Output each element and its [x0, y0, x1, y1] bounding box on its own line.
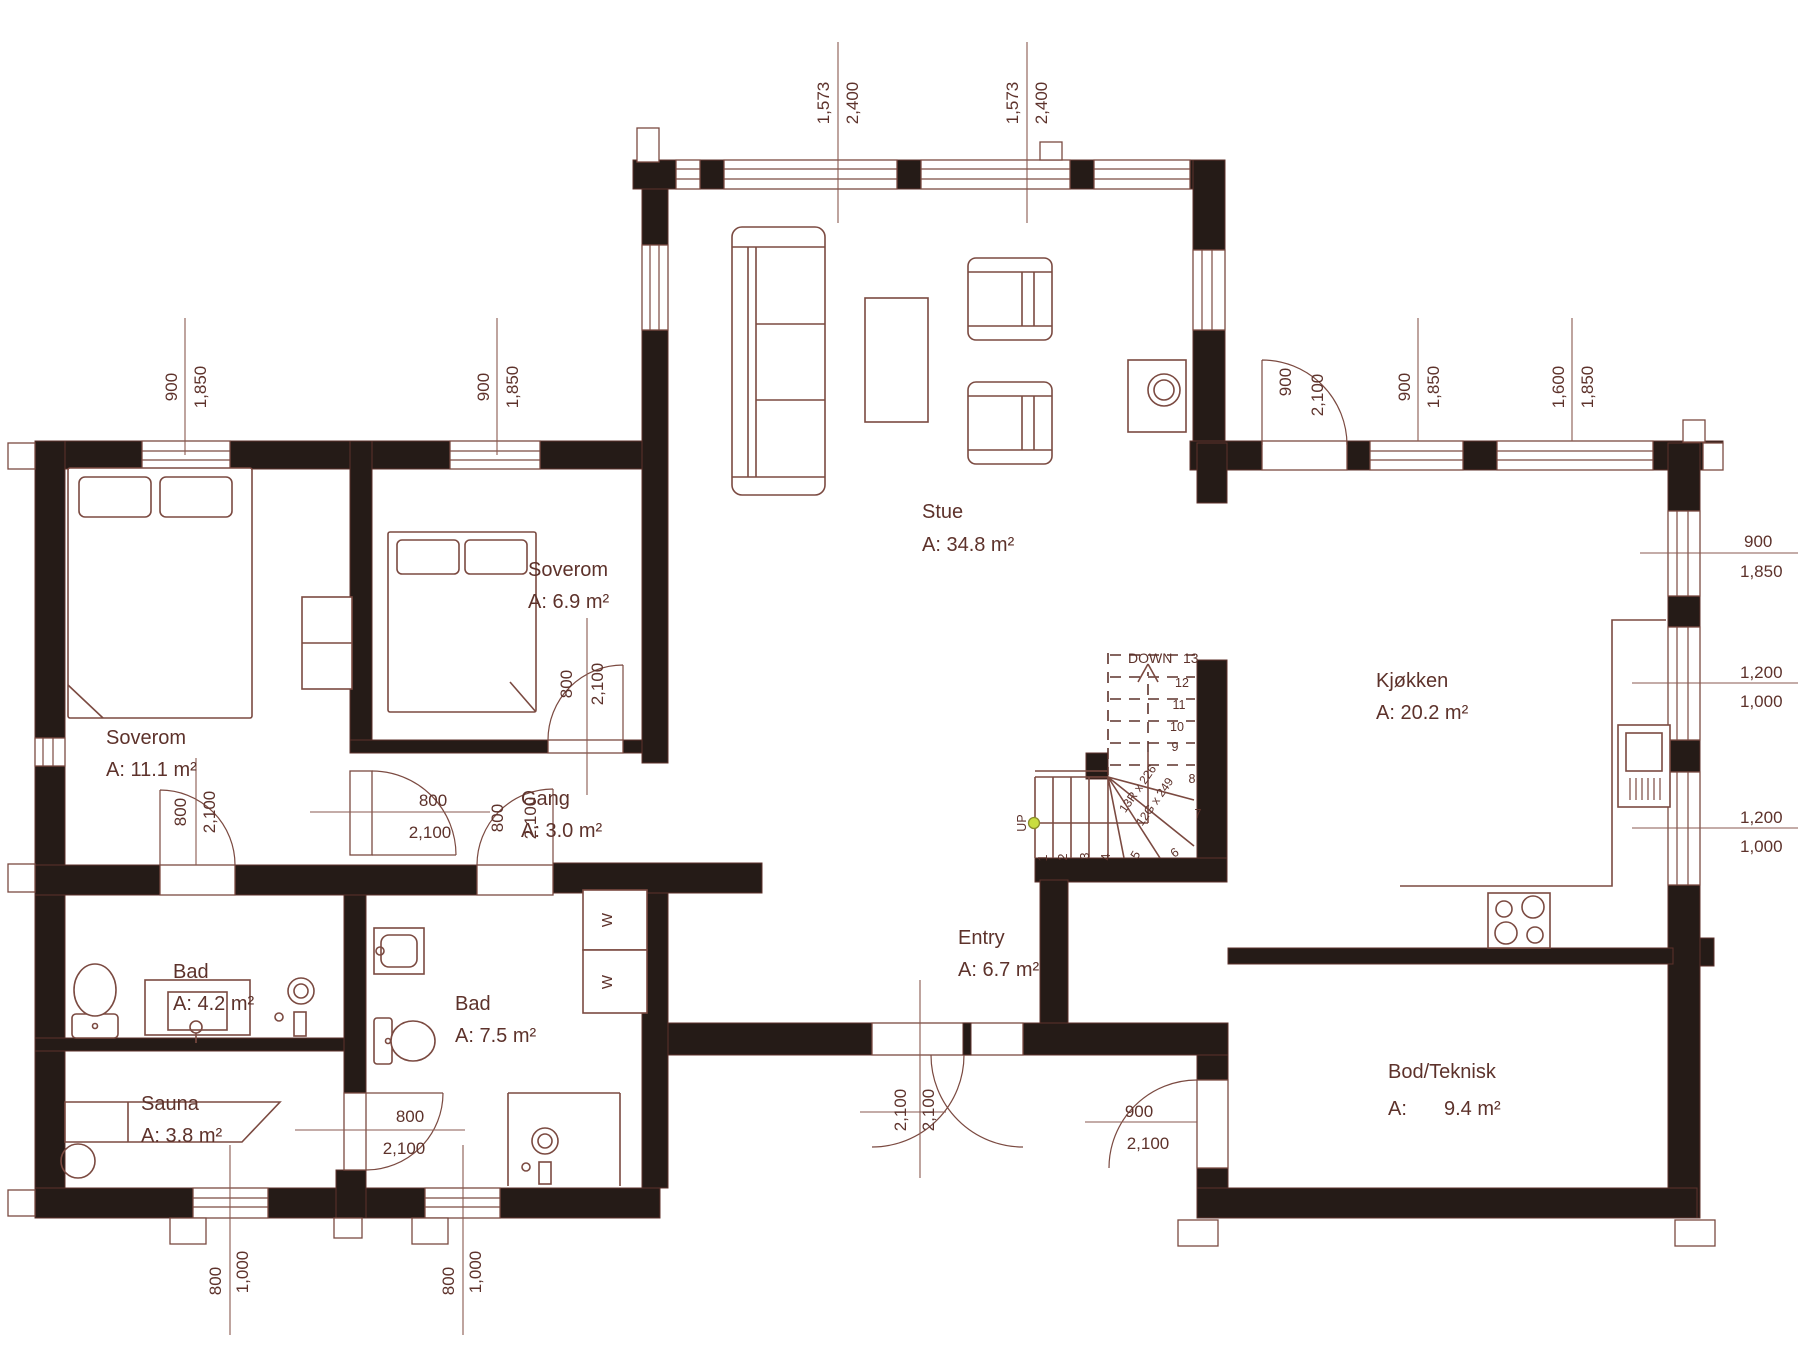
room-name-soverom2: Soverom	[528, 559, 608, 581]
armchair	[968, 382, 1052, 464]
stair-down-label: DOWN	[1128, 650, 1172, 666]
room-area-soverom1: A: 11.1 m²	[106, 759, 197, 781]
dim-text: 900	[474, 373, 493, 401]
wall-segment	[1040, 880, 1068, 1023]
room-name-stue: Stue	[922, 501, 963, 523]
dim-text: 900	[1395, 373, 1414, 401]
door-swing-entry-left	[872, 1055, 964, 1147]
dim-text: 2,100	[200, 791, 219, 834]
dim-text: 2,400	[843, 82, 862, 125]
stair-up-label: UP	[1015, 814, 1029, 831]
dim-text: 1,000	[1740, 837, 1783, 856]
window	[1370, 441, 1463, 470]
log-end	[8, 864, 35, 892]
room-area-bad2: A: 7.5 m²	[455, 1025, 536, 1047]
log-end	[1683, 420, 1705, 442]
dim-text: 1,600	[1549, 366, 1568, 409]
stair-step: 11	[1173, 698, 1186, 712]
wall-segment	[1197, 1188, 1697, 1218]
dim-text: 1,850	[1578, 366, 1597, 409]
door-opening	[548, 740, 623, 753]
room-area-sauna: A: 3.8 m²	[141, 1125, 222, 1147]
sauna-heater	[61, 1144, 95, 1178]
dim-text: 1,000	[233, 1251, 252, 1294]
dim-text: 900	[1744, 532, 1772, 551]
door-opening	[350, 771, 372, 855]
floor-plan-canvas: DOWN 13 12 11 10 9 8 7 6 5 4 3 2 1 UP 13…	[0, 0, 1814, 1354]
porch-footing	[1675, 1220, 1715, 1246]
log-end	[8, 1190, 35, 1216]
dim-text: 800	[206, 1267, 225, 1295]
coffee-table	[865, 298, 928, 422]
dim-text: 2,100	[588, 663, 607, 706]
stair-walk-line	[1040, 664, 1158, 823]
staircase: DOWN 13 12 11 10 9 8 7 6 5 4 3 2 1 UP 13…	[1015, 650, 1202, 862]
room-area-stue: A: 34.8 m²	[922, 534, 1015, 556]
dim-text: 1,850	[503, 366, 522, 409]
door-opening	[477, 865, 553, 895]
dresser-soverom1	[302, 597, 352, 689]
armchair	[968, 258, 1052, 340]
room-name-bad2: Bad	[455, 993, 491, 1015]
door-opening	[160, 865, 235, 895]
stair-step-13: 13	[1183, 650, 1199, 666]
dim-text: 800	[396, 1107, 424, 1126]
sink-bad2	[374, 928, 424, 974]
dim-text: 800	[171, 798, 190, 826]
wall-segment	[35, 865, 553, 895]
stair-step: 2	[1056, 853, 1070, 860]
stair-step: 10	[1170, 720, 1184, 734]
window	[1497, 441, 1653, 470]
dim-text: 900	[1276, 368, 1295, 396]
floor-plan-page: DOWN 13 12 11 10 9 8 7 6 5 4 3 2 1 UP 13…	[0, 0, 1814, 1354]
stair-step: 3	[1078, 852, 1092, 859]
wardrobe-label: W	[599, 974, 616, 989]
door-openings	[160, 441, 1347, 1170]
door-swing-terrace	[1262, 360, 1347, 445]
wall-segment	[1035, 858, 1227, 882]
window	[35, 738, 65, 766]
wall-segment	[35, 441, 642, 469]
log-end	[637, 128, 659, 162]
log-end	[8, 443, 35, 469]
dim-text: 2,100	[409, 823, 452, 842]
wall-segment	[1197, 443, 1227, 503]
stair-step: 7	[1195, 807, 1202, 821]
wall-segment	[553, 863, 762, 893]
porch-footing	[334, 1218, 362, 1238]
wall-segment	[336, 1170, 366, 1218]
door-swing-entry-right	[931, 1055, 1023, 1147]
dim-text: 800	[488, 804, 507, 832]
window	[142, 441, 230, 469]
room-name-soverom1: Soverom	[106, 727, 186, 749]
dim-text: 1,200	[1740, 663, 1783, 682]
dim-text: 800	[419, 791, 447, 810]
log-end	[1703, 443, 1723, 470]
wall-segment	[35, 1038, 344, 1051]
dim-text: 1,850	[1740, 562, 1783, 581]
shower-bad2	[508, 1093, 620, 1186]
wardrobe-label: W	[599, 912, 616, 927]
window	[1193, 250, 1225, 330]
stair-step: 12	[1175, 676, 1189, 690]
wall-segment	[1700, 938, 1714, 966]
door-opening	[1262, 441, 1347, 470]
room-name-sauna: Sauna	[141, 1093, 200, 1115]
wall-segment	[350, 441, 372, 753]
dim-text: 900	[1125, 1102, 1153, 1121]
room-name-bad1: Bad	[173, 961, 209, 983]
door-opening	[1197, 1080, 1228, 1168]
dim-text: 900	[162, 373, 181, 401]
stair-start-dot	[1029, 818, 1040, 829]
dim-text: 2,100	[1308, 374, 1327, 417]
window	[921, 160, 1070, 189]
dim-text: 1,573	[814, 82, 833, 125]
dim-text: 800	[557, 670, 576, 698]
log-end	[1040, 142, 1062, 160]
cooktop	[1488, 893, 1550, 948]
dim-text: 2,100	[891, 1089, 910, 1132]
window	[642, 245, 668, 330]
door-mullion	[963, 1023, 971, 1055]
window	[724, 160, 897, 189]
stair-step: 4	[1099, 853, 1113, 860]
room-area-gang: A: 3.0 m²	[521, 820, 602, 842]
dim-text: 2,100	[383, 1139, 426, 1158]
door-opening	[872, 1023, 1023, 1055]
dim-text: 2,100	[919, 1089, 938, 1132]
porch-footing	[412, 1218, 448, 1244]
wall-segment	[1228, 948, 1673, 964]
window	[1094, 160, 1190, 189]
wood-stove	[1128, 360, 1186, 432]
room-area-soverom2: A: 6.9 m²	[528, 591, 609, 613]
dim-text: 1,850	[1424, 366, 1443, 409]
shower-bad1	[275, 978, 314, 1036]
refrigerator	[1618, 725, 1670, 807]
room-name-entry: Entry	[958, 927, 1005, 949]
wall-segment	[1086, 753, 1108, 779]
toilet-bad1	[72, 964, 118, 1038]
door-swing-sauna	[366, 1093, 443, 1170]
dim-text: 800	[439, 1267, 458, 1295]
dim-text: 1,000	[466, 1251, 485, 1294]
dim-text: 2,100	[1127, 1134, 1170, 1153]
porch-footing	[1178, 1220, 1218, 1246]
room-name-gang: Gang	[521, 788, 570, 810]
bed-soverom1	[68, 468, 252, 718]
wall-segment	[35, 441, 65, 1218]
room-area-bad1: A: 4.2 m²	[173, 993, 254, 1015]
room-name-bod: Bod/Teknisk	[1388, 1061, 1497, 1083]
porch-footing	[170, 1218, 206, 1244]
dim-text: 1,850	[191, 366, 210, 409]
stair-step: 8	[1189, 772, 1196, 786]
window	[676, 160, 700, 189]
room-name-kjokken: Kjøkken	[1376, 670, 1448, 692]
wardrobes: W W	[583, 890, 647, 1013]
dim-text: 1,200	[1740, 808, 1783, 827]
sofa	[732, 227, 825, 495]
door-swing-bod	[1109, 1080, 1197, 1168]
bed-soverom2	[388, 532, 536, 712]
dim-text: 2,400	[1032, 82, 1051, 125]
stair-step: 1	[1036, 854, 1050, 861]
room-area-kjokken: A: 20.2 m²	[1376, 702, 1469, 724]
wall-segment	[1197, 660, 1227, 880]
window	[450, 441, 540, 469]
stair-step: 9	[1172, 740, 1179, 754]
toilet-bad2	[374, 1018, 435, 1064]
door-swing-gang-soverom1	[372, 771, 456, 855]
door-opening	[344, 1093, 366, 1170]
dim-text: 1,000	[1740, 692, 1783, 711]
room-area-entry: A: 6.7 m²	[958, 959, 1039, 981]
room-area-prefix-bod: A:	[1388, 1098, 1407, 1120]
room-area-value-bod: 9.4 m²	[1444, 1098, 1501, 1120]
dim-text: 1,573	[1003, 82, 1022, 125]
